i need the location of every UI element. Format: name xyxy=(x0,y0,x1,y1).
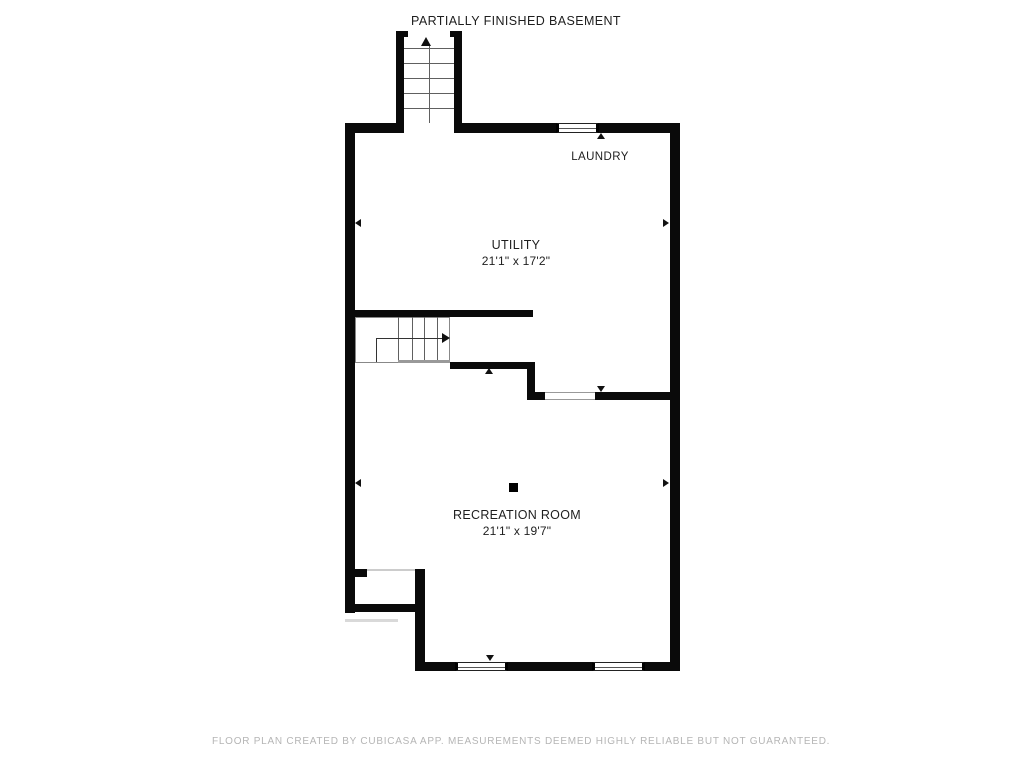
room-label-recreation-block: RECREATION ROOM 21'1" x 19'7" xyxy=(417,507,617,539)
arrow-down-icon xyxy=(597,386,605,392)
support-post xyxy=(509,483,518,492)
arrow-right-icon xyxy=(663,479,669,487)
window-top xyxy=(556,123,599,133)
room-label-utility-block: UTILITY 21'1" x 17'2" xyxy=(416,237,616,269)
stair-shaft-left-wall xyxy=(396,31,404,133)
wall-top-mid xyxy=(454,123,556,133)
window-bottom-right xyxy=(592,662,645,671)
alcove-opening-line xyxy=(367,569,415,571)
arrow-up-icon xyxy=(485,368,493,374)
stair-arrow-stem xyxy=(376,338,377,362)
wall-alcove-bottom xyxy=(345,604,425,612)
wall-left xyxy=(345,123,355,613)
arrow-up-icon xyxy=(597,133,605,139)
room-dims-recreation: 21'1" x 19'7" xyxy=(417,523,617,539)
stair-right-arrow-icon xyxy=(442,333,450,343)
door-opening-recreation xyxy=(545,392,595,400)
arrow-left-icon xyxy=(355,479,361,487)
stair-up-arrow-icon xyxy=(421,37,431,46)
wall-step-vertical xyxy=(415,569,425,671)
arrow-left-icon xyxy=(355,219,361,227)
room-dims-utility: 21'1" x 17'2" xyxy=(416,253,616,269)
faint-edge-line xyxy=(345,619,398,622)
wall-utility-divider xyxy=(345,310,533,317)
wall-top-right xyxy=(599,123,680,133)
room-label-utility: UTILITY xyxy=(416,237,616,253)
footer-disclaimer: FLOOR PLAN CREATED BY CUBICASA APP. MEAS… xyxy=(212,736,812,747)
stair-arrow-line xyxy=(376,338,442,339)
floor-plan-title: PARTIALLY FINISHED BASEMENT xyxy=(316,14,716,28)
staircase-lower xyxy=(355,317,450,363)
arrow-down-icon xyxy=(486,655,494,661)
stair-lower-edge xyxy=(398,360,450,363)
arrow-right-icon xyxy=(663,219,669,227)
wall-alcove-stub xyxy=(345,569,367,577)
floor-plan-canvas: PARTIALLY FINISHED BASEMENT xyxy=(0,0,1024,768)
room-label-laundry: LAUNDRY xyxy=(550,151,650,163)
wall-rec-top-right xyxy=(595,392,680,400)
window-bottom-left xyxy=(455,662,508,671)
wall-rec-top-left xyxy=(527,392,545,400)
staircase-upper xyxy=(404,37,454,123)
room-label-recreation: RECREATION ROOM xyxy=(417,507,617,523)
stair-shaft-right-wall xyxy=(454,31,462,133)
